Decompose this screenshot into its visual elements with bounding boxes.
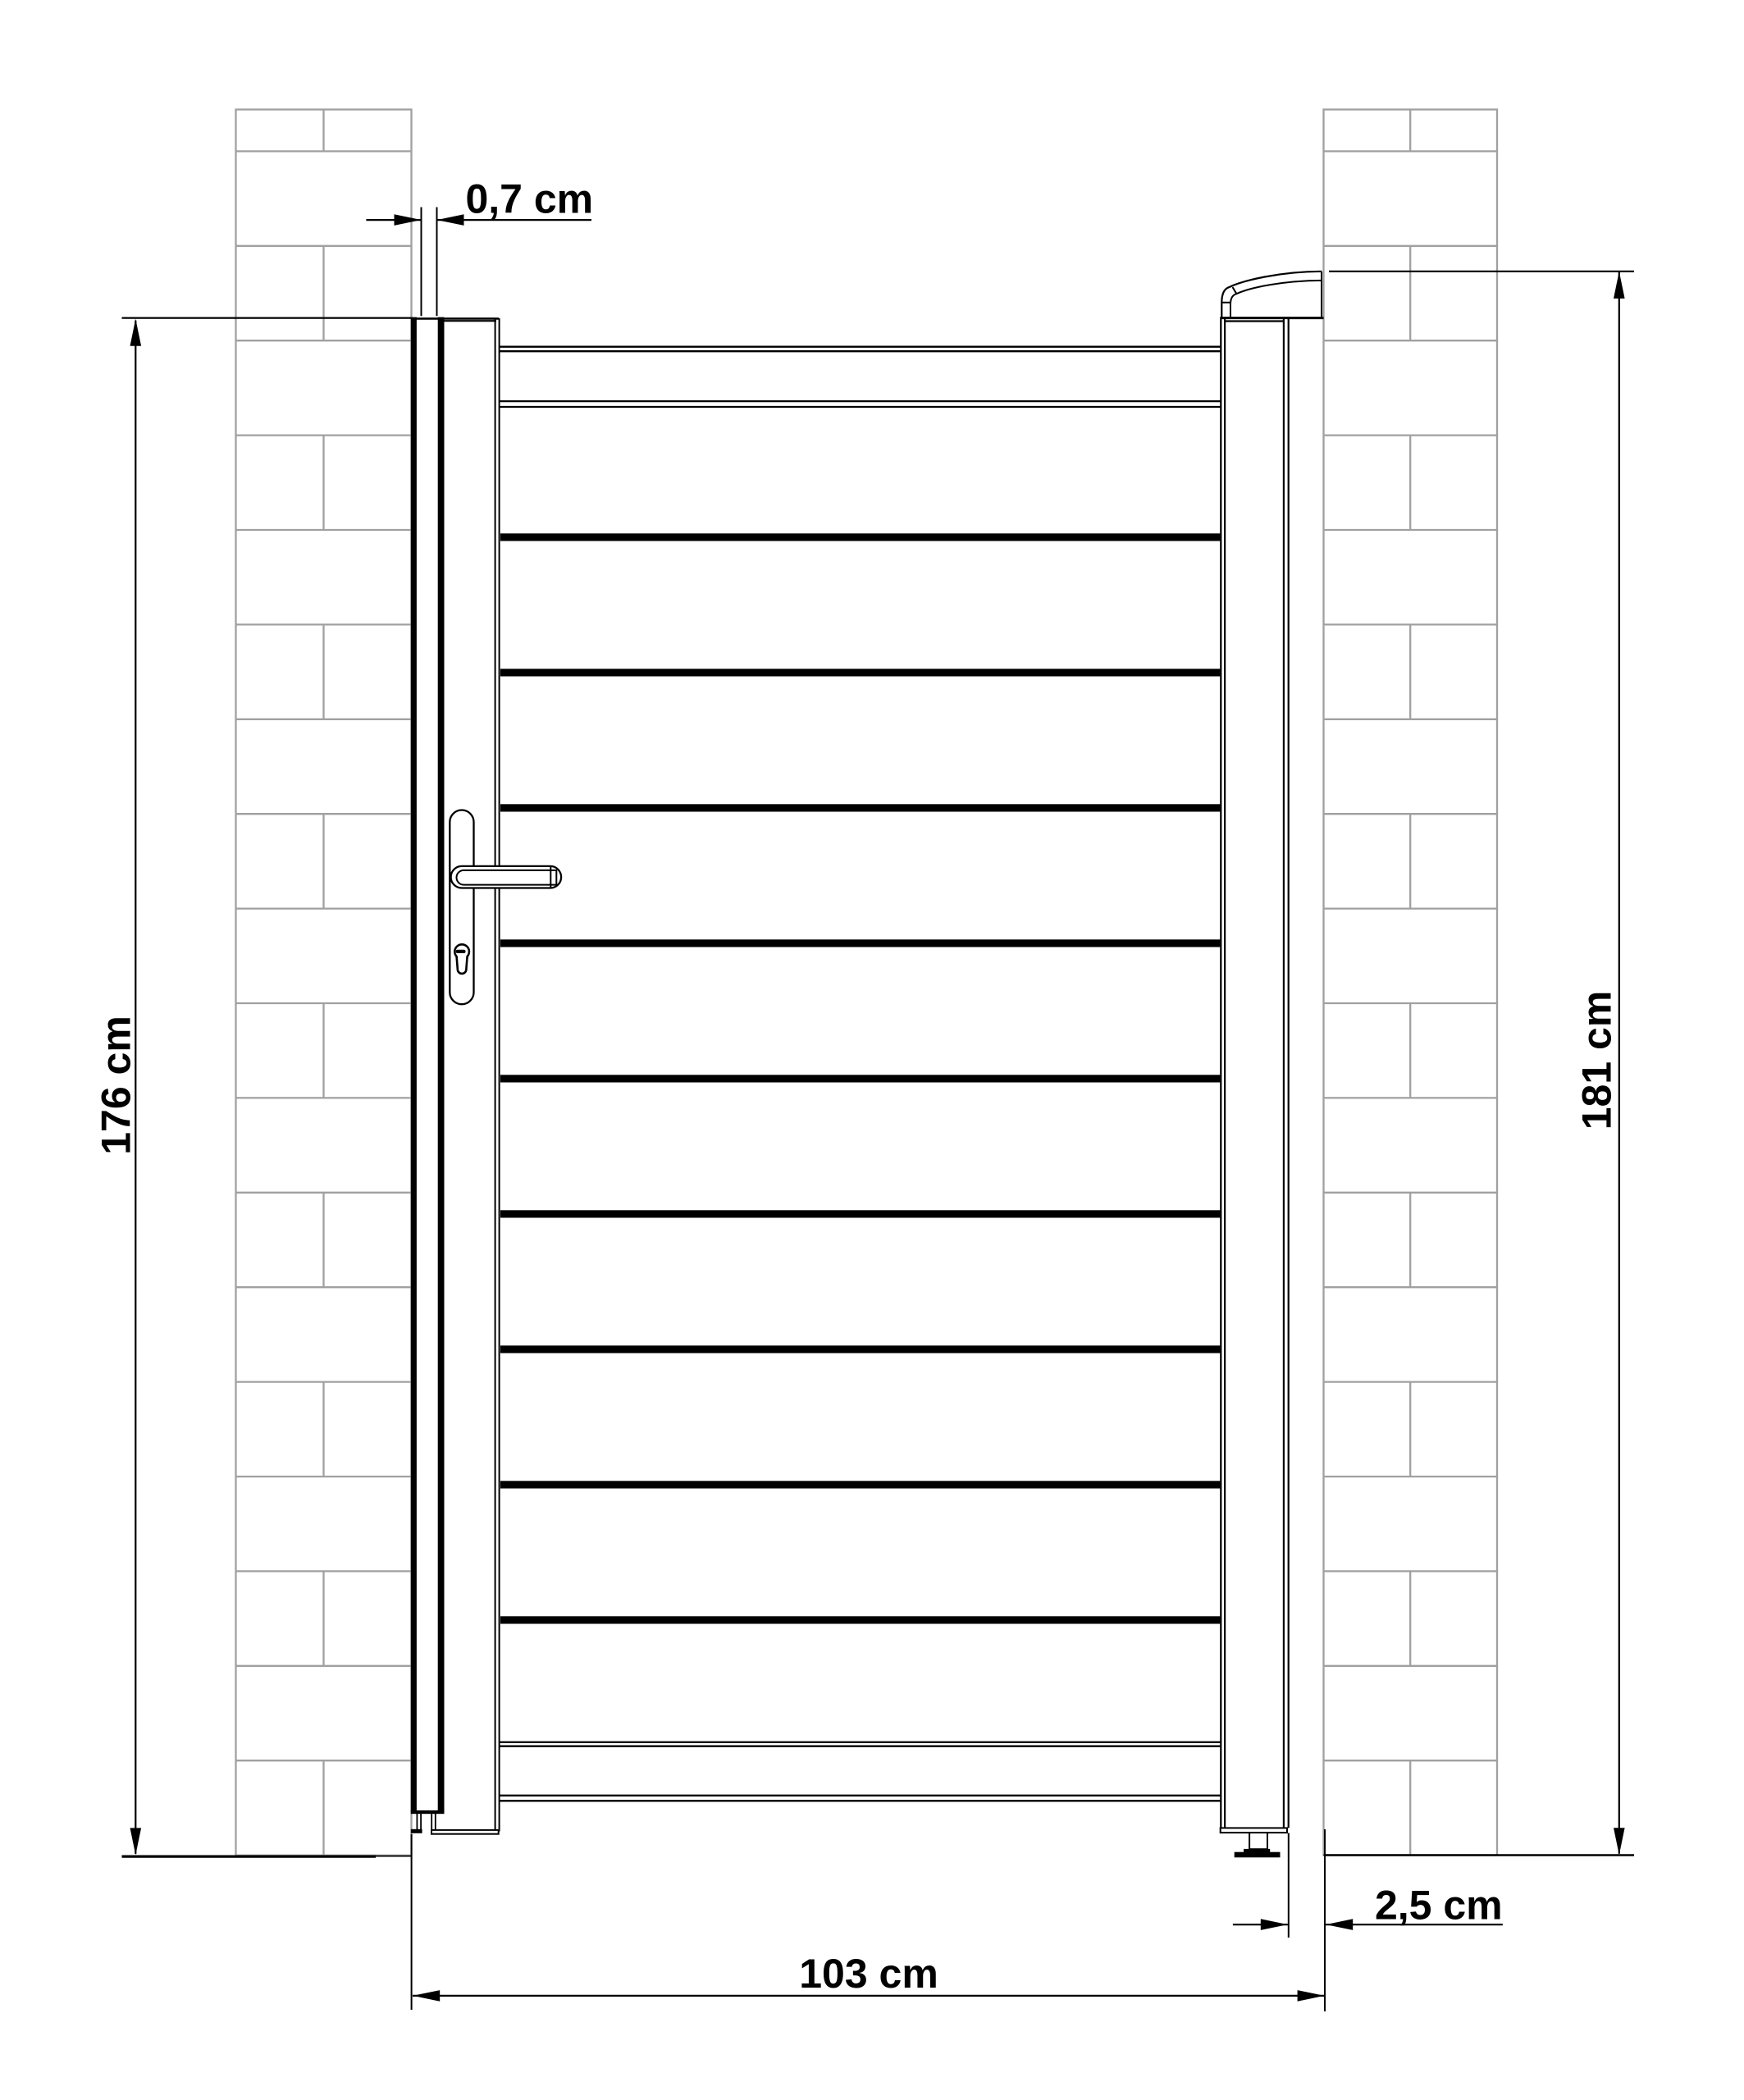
svg-text:103 cm: 103 cm: [799, 1951, 938, 1997]
svg-text:176 cm: 176 cm: [94, 1016, 139, 1155]
svg-text:2,5 cm: 2,5 cm: [1375, 1883, 1503, 1929]
svg-text:181 cm: 181 cm: [1574, 991, 1620, 1130]
svg-text:0,7 cm: 0,7 cm: [465, 176, 593, 221]
